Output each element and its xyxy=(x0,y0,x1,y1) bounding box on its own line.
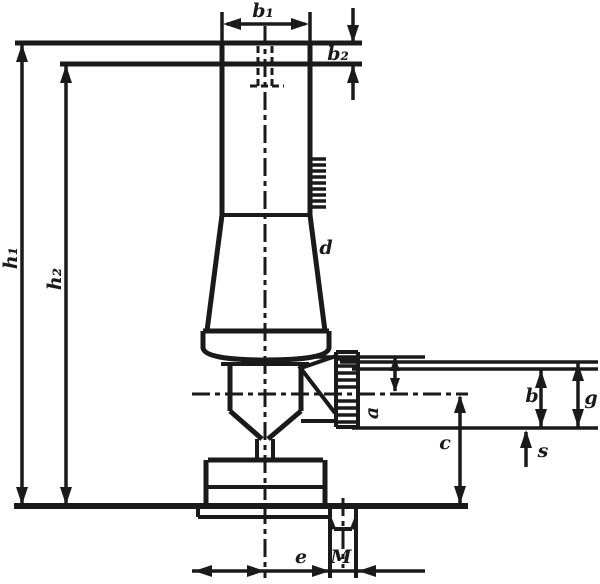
centerlines xyxy=(192,26,468,578)
pillar-thread-hatch xyxy=(311,159,326,207)
taper-left xyxy=(207,215,222,331)
arrowhead-up xyxy=(390,357,400,371)
dimension-h2: h₂ xyxy=(44,65,72,505)
dim-label-c: c xyxy=(439,432,451,454)
dimension-b: b xyxy=(525,370,547,427)
arrowhead-up xyxy=(60,65,72,83)
arrowhead-up xyxy=(347,65,359,83)
arrowhead-up xyxy=(454,395,466,413)
dimension-b1: b₁ xyxy=(223,0,309,30)
arrowhead-far-left xyxy=(194,565,212,577)
dimension-a: a xyxy=(361,357,400,419)
dim-label-b1: b₁ xyxy=(252,0,274,22)
dim-label-h1: h₁ xyxy=(0,247,22,269)
dim-label-M: M xyxy=(329,546,352,568)
branch-cone-edge xyxy=(299,366,335,413)
taper-right xyxy=(310,215,325,331)
dimension-b2: b₂ xyxy=(327,8,359,100)
arrowhead-up xyxy=(572,363,584,381)
arrowhead-right xyxy=(291,18,309,30)
arrowhead-down xyxy=(572,409,584,427)
arrowhead-down xyxy=(454,486,466,504)
arrowhead-left xyxy=(223,18,241,30)
dimension-h1: h₁ xyxy=(0,44,28,505)
dimension-c: c xyxy=(439,395,466,504)
arrowhead-e-right xyxy=(312,565,330,577)
arrowhead-down xyxy=(16,487,28,505)
arrowhead-up xyxy=(520,430,532,448)
arrowhead-down xyxy=(390,378,400,392)
arrowhead-down xyxy=(60,487,72,505)
dim-label-b2: b₂ xyxy=(327,43,349,65)
dim-label-b: b xyxy=(525,385,538,407)
arrowhead-m-right xyxy=(358,565,376,577)
valve-outline xyxy=(14,12,468,517)
technical-drawing-canvas: b₁ b₂ h₁ h₂ d a xyxy=(0,0,600,584)
dimension-bottom: e M xyxy=(192,546,425,577)
dim-label-g: g xyxy=(584,387,597,409)
valve-dimension-drawing: b₁ b₂ h₁ h₂ d a xyxy=(0,0,600,584)
arrowhead-down xyxy=(347,25,359,43)
dim-label-h2: h₂ xyxy=(44,268,66,290)
arrowhead-e-left xyxy=(247,565,265,577)
dim-label-e: e xyxy=(295,546,307,568)
dim-label-s: s xyxy=(537,440,549,462)
dimension-g: g xyxy=(572,363,598,427)
funnel-left xyxy=(230,411,262,439)
dim-label-d: d xyxy=(319,237,332,259)
funnel-right xyxy=(268,411,301,439)
arrowhead-up xyxy=(16,44,28,62)
dim-label-a: a xyxy=(361,407,383,419)
arrowhead-down xyxy=(535,409,547,427)
dimension-s: s xyxy=(520,430,549,467)
